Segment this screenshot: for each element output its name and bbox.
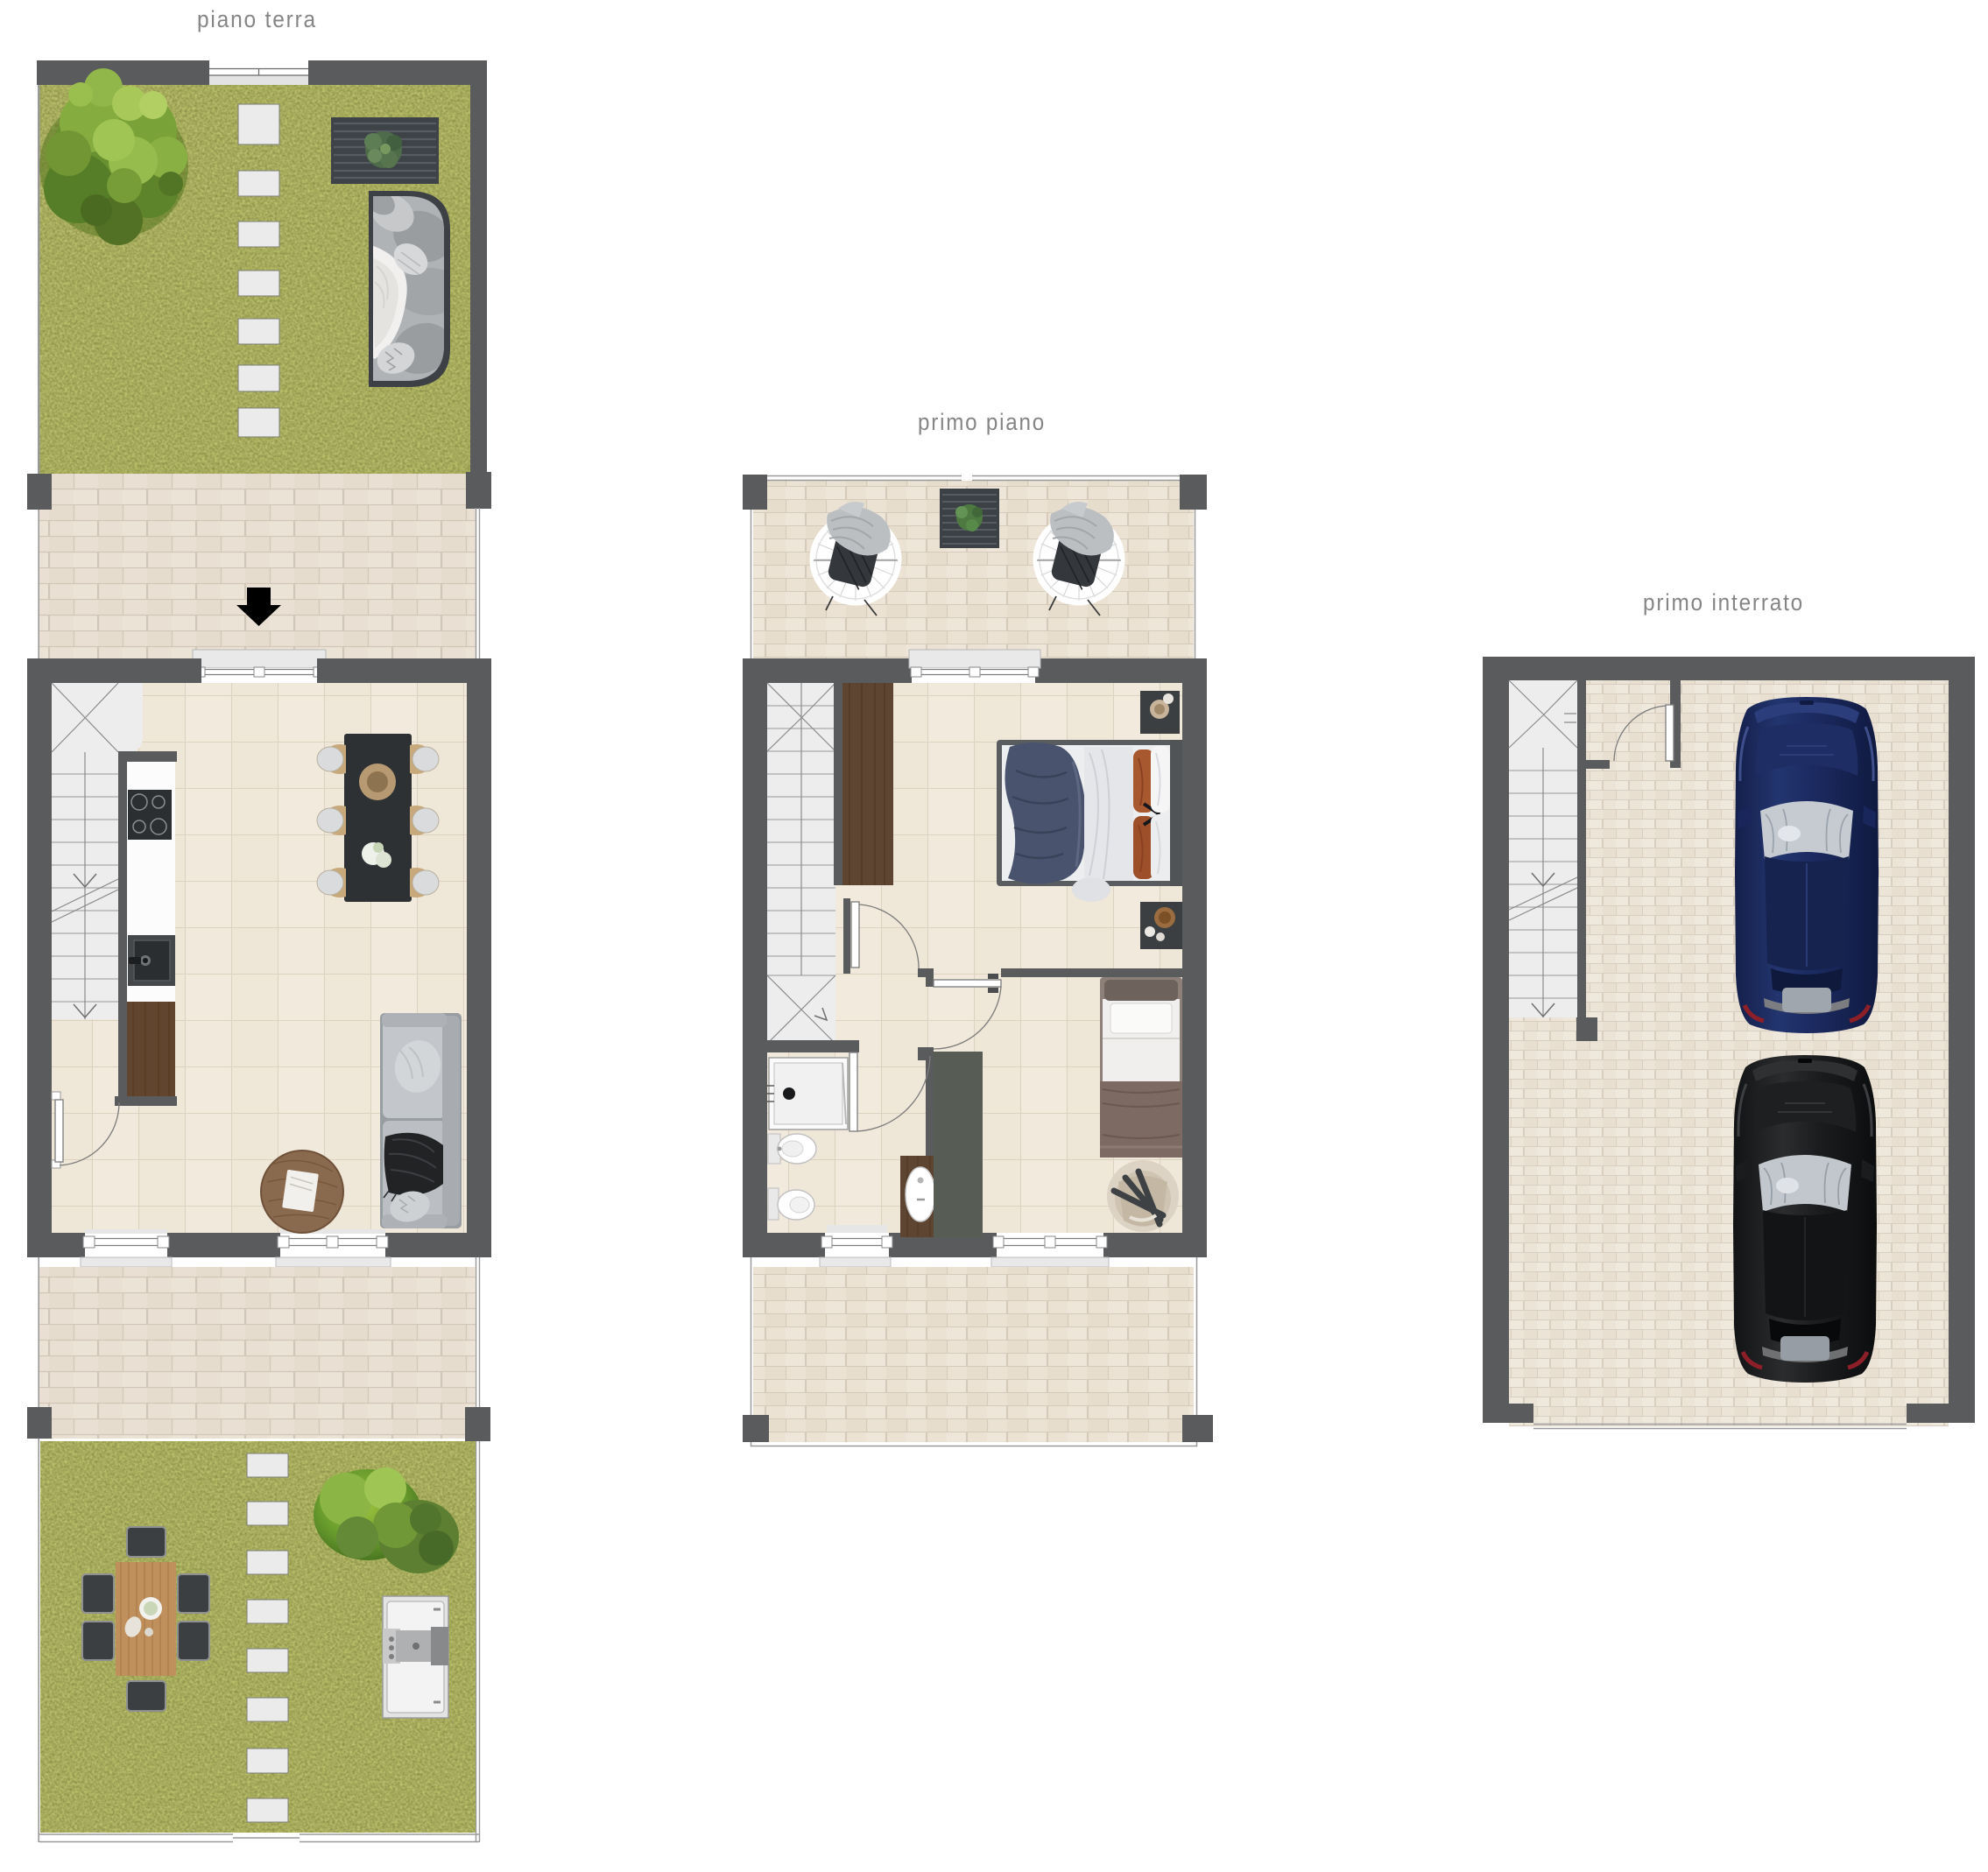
- svg-text:piano terra: piano terra: [197, 6, 317, 32]
- svg-text:primo piano: primo piano: [918, 409, 1046, 435]
- svg-text:primo interrato: primo interrato: [1643, 589, 1804, 616]
